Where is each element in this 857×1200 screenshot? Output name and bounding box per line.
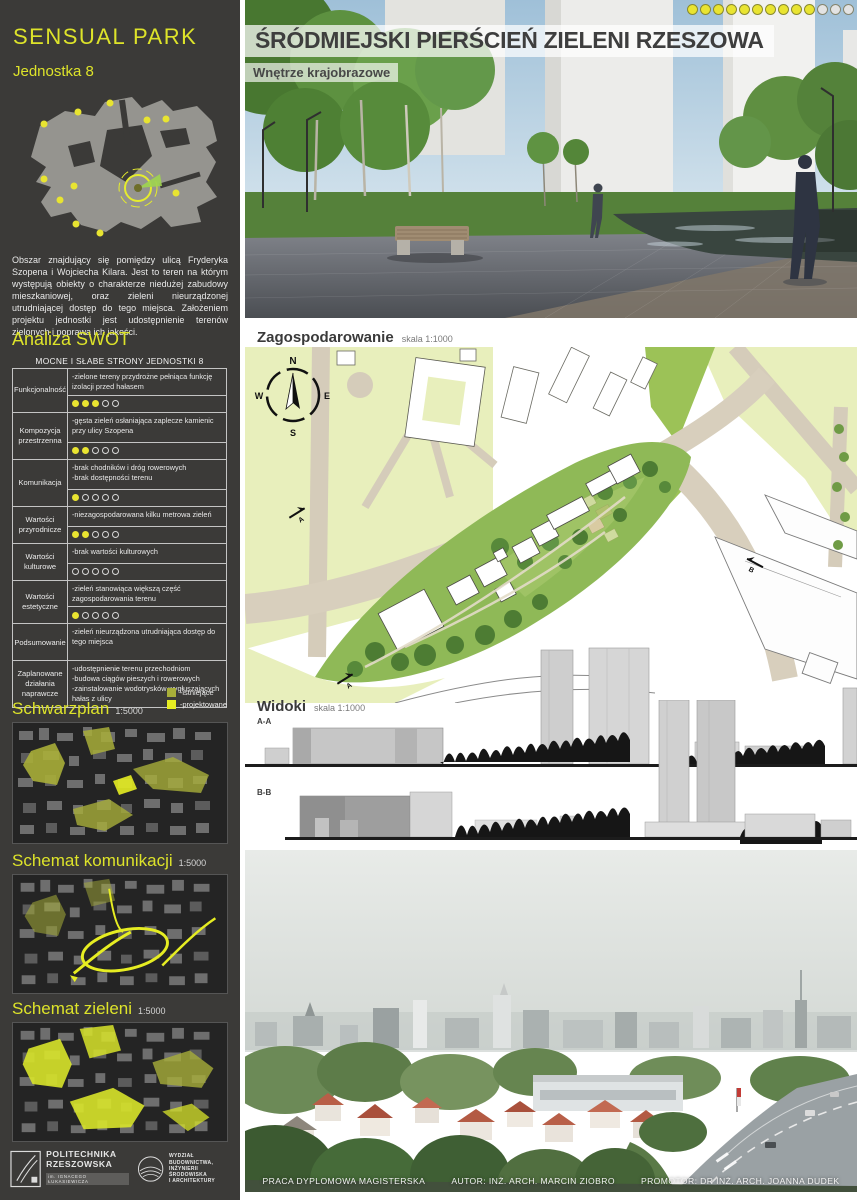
- brand-title: SENSUAL PARK: [13, 24, 197, 50]
- faculty-line: INŻYNIERII ŚRODOWISKA: [169, 1166, 207, 1178]
- schemat-komunikacji-title: Schemat komunikacji1:5000: [12, 851, 206, 871]
- schemat-zieleni-title: Schemat zieleni1:5000: [12, 999, 166, 1019]
- footer-thesis: PRACA DYPLOMOWA MAGISTERSKA: [263, 1176, 426, 1186]
- swot-description: -brak chodników i dróg rowerowych -brak …: [68, 460, 226, 489]
- table-row: Wartości estetyczne -zieleń stanowiąca w…: [13, 580, 226, 624]
- swot-table-title: MOCNE I SŁABE STRONY JEDNOSTKI 8: [12, 356, 227, 366]
- footer-promoter: PROMOTOR: DR INŻ. ARCH. JOANNA DUDEK: [641, 1176, 840, 1186]
- schemat-komunikacji-map: [12, 874, 228, 994]
- swot-category: Komunikacja: [13, 460, 68, 506]
- schwarzplan-scale: 1:5000: [115, 706, 143, 716]
- table-row: Kompozycja przestrzenna -gęsta zieleń os…: [13, 412, 226, 459]
- poster-title: ŚRÓDMIEJSKI PIERŚCIEŃ ZIELENI RZESZOWA: [255, 27, 764, 54]
- plan-scale: skala 1:1000: [402, 334, 453, 344]
- legend-item-existing: -istniejące: [167, 688, 227, 697]
- university-name-line1: POLITECHNIKA: [46, 1149, 116, 1159]
- faculty-line: I ARCHITEKTURY: [169, 1178, 215, 1184]
- swot-heading: Analiza SWOT: [12, 329, 130, 350]
- university-logo: POLITECHNIKA RZESZOWSKA im. IGNACEGO ŁUK…: [10, 1150, 129, 1188]
- table-row: Podsumowanie -zieleń nieurządzona utrudn…: [13, 623, 226, 660]
- section-bb-drawing: [245, 700, 857, 848]
- swot-rating: [68, 442, 226, 459]
- swot-description: -brak wartości kulturowych: [68, 544, 226, 563]
- plan-header: Zagospodarowanieskala 1:1000: [257, 329, 453, 347]
- plan-title: Zagospodarowanie: [257, 329, 394, 346]
- swot-description: -zieleń nieurządzona utrudniająca dostęp…: [68, 624, 226, 660]
- swot-category: Kompozycja przestrzenna: [13, 413, 68, 459]
- swot-rating: [68, 526, 226, 543]
- swot-description: -zielone tereny przydrożne pełniąca funk…: [68, 369, 226, 395]
- views-scale: skala 1:1000: [314, 703, 365, 713]
- section-aa-label: A-A: [257, 717, 271, 726]
- faculty-logo: WYDZIAŁ BUDOWNICTWA, INŻYNIERII ŚRODOWIS…: [137, 1153, 236, 1184]
- footer-author: AUTOR: INŻ. ARCH. MARCIN ZIOBRO: [451, 1176, 615, 1186]
- schwarzplan-map: [12, 722, 228, 844]
- city-panorama-photo: [245, 850, 857, 1192]
- poster-title-band: ŚRÓDMIEJSKI PIERŚCIEŃ ZIELENI RZESZOWA: [245, 25, 774, 57]
- schemat-zieleni-map: [12, 1022, 228, 1142]
- compass-e: E: [324, 391, 330, 401]
- legend-label: -projektowane: [180, 700, 227, 709]
- existing-swatch: [167, 688, 176, 697]
- swot-category: Funkcjonalność: [13, 369, 68, 412]
- swot-category: Wartości estetyczne: [13, 581, 68, 624]
- swot-category: Wartości kulturowe: [13, 544, 68, 580]
- legend: -istniejące -projektowane: [167, 688, 227, 712]
- university-name-line2: RZESZOWSKA: [46, 1159, 112, 1169]
- faculty-line: BUDOWNICTWA,: [169, 1160, 213, 1166]
- unit-locator-map: [10, 86, 230, 244]
- swot-category: Podsumowanie: [13, 624, 68, 660]
- logos: POLITECHNIKA RZESZOWSKA im. IGNACEGO ŁUK…: [10, 1150, 236, 1188]
- faculty-logo-icon: [137, 1155, 164, 1183]
- swot-rating: [68, 489, 226, 506]
- schemat-zieleni-scale: 1:5000: [138, 1006, 166, 1016]
- table-row: Wartości przyrodnicze -niezagospodarowan…: [13, 506, 226, 543]
- university-subname: im. IGNACEGO ŁUKASIEWICZA: [46, 1173, 129, 1185]
- views-header: Widokiskala 1:1000: [257, 698, 365, 716]
- unit-description: Obszar znajdujący się pomiędzy ulicą Fry…: [12, 254, 228, 338]
- legend-item-planned: -projektowane: [167, 700, 227, 709]
- swot-description: -niezagospodarowana kilku metrowa zieleń: [68, 507, 226, 526]
- footer-caption: PRACA DYPLOMOWA MAGISTERSKA AUTOR: INŻ. …: [245, 1176, 857, 1186]
- swot-rating: [68, 606, 226, 623]
- table-row: Wartości kulturowe -brak wartości kultur…: [13, 543, 226, 580]
- table-row: Komunikacja -brak chodników i dróg rower…: [13, 459, 226, 506]
- main-panel: ŚRÓDMIEJSKI PIERŚCIEŃ ZIELENI RZESZOWA W…: [245, 0, 857, 1200]
- politechnika-rzeszowska-logo-icon: [10, 1150, 41, 1188]
- swot-rating: [68, 395, 226, 412]
- swot-table: Funkcjonalność -zielone tereny przydrożn…: [12, 368, 227, 708]
- schemat-komunikacji-scale: 1:5000: [179, 858, 207, 868]
- swot-description: -gęsta zieleń osłaniająca zaplecze kamie…: [68, 413, 226, 442]
- table-row: Funkcjonalność -zielone tereny przydrożn…: [13, 369, 226, 412]
- sidebar: SENSUAL PARK Jednostka 8 Obszar znajdują…: [0, 0, 240, 1200]
- swot-category: Wartości przyrodnicze: [13, 507, 68, 543]
- section-bb-label: B-B: [257, 788, 271, 797]
- compass-w: W: [255, 391, 264, 401]
- poster-subtitle: Wnętrze krajobrazowe: [245, 63, 398, 82]
- schwarzplan-title: Schwarzplan1:5000: [12, 699, 143, 719]
- unit-label: Jednostka 8: [13, 63, 94, 80]
- views-title: Widoki: [257, 698, 306, 715]
- legend-label: -istniejące: [180, 688, 214, 697]
- faculty-line: WYDZIAŁ: [169, 1153, 194, 1159]
- compass-n: N: [289, 356, 296, 367]
- planned-swatch: [167, 700, 176, 709]
- swot-rating: [68, 563, 226, 580]
- progress-dots: [687, 4, 854, 15]
- swot-description: -zieleń stanowiąca większą część zagospo…: [68, 581, 226, 607]
- compass-s: S: [290, 428, 296, 438]
